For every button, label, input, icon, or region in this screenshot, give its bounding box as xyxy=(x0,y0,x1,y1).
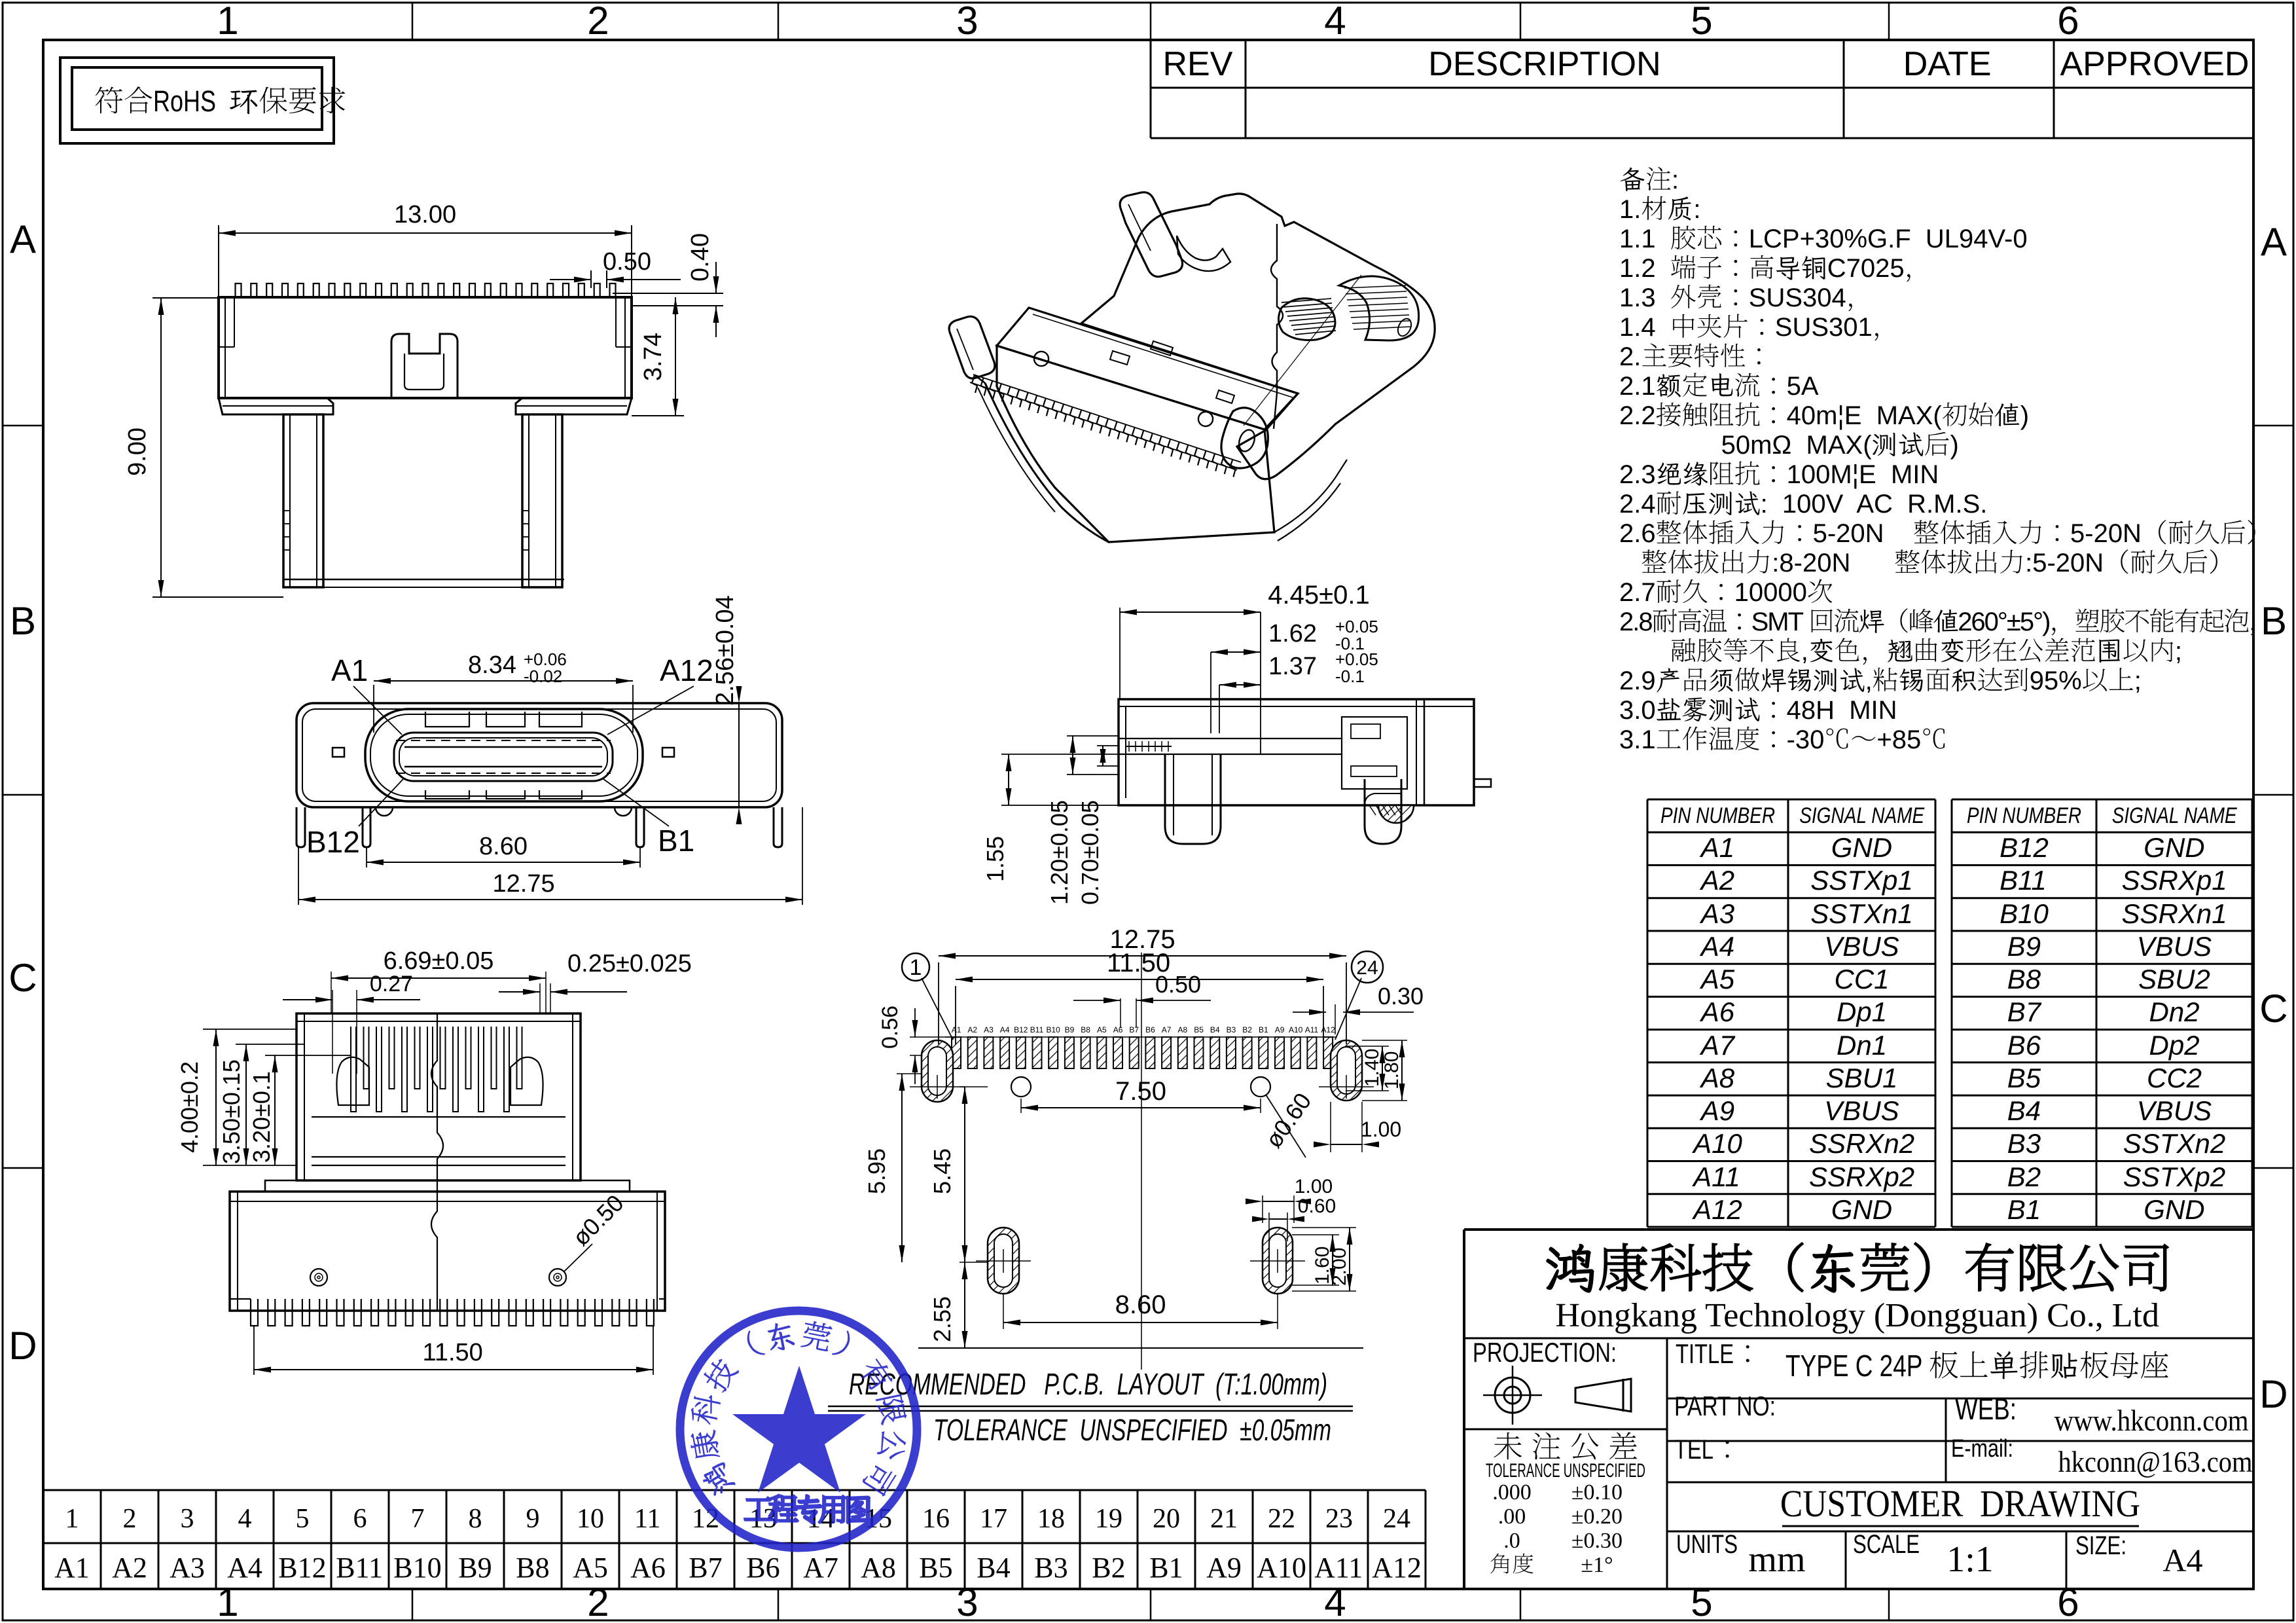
svg-text:100M¦E MIN: 100M¦E MIN xyxy=(1787,460,1939,489)
svg-text::8-20N: :8-20N xyxy=(1772,549,1894,577)
svg-text:TEL: TEL xyxy=(1674,1434,1713,1465)
svg-text:1.4: 1.4 xyxy=(1619,313,1670,342)
svg-text:B6: B6 xyxy=(2007,1030,2041,1061)
svg-text:: 100V AC R.M.S.: : 100V AC R.M.S. xyxy=(1761,490,1988,519)
svg-text:WEB:: WEB: xyxy=(1955,1392,2017,1426)
svg-text:APPROVED: APPROVED xyxy=(2060,45,2250,83)
svg-text:B11: B11 xyxy=(2000,865,2047,896)
svg-text:A11: A11 xyxy=(1691,1161,1740,1192)
svg-text:B: B xyxy=(2261,599,2287,643)
svg-text:PIN NUMBER: PIN NUMBER xyxy=(1967,803,2081,828)
svg-text:TYPE C 24P: TYPE C 24P xyxy=(1785,1349,1929,1383)
svg-text:2: 2 xyxy=(587,1580,609,1623)
svg-text:A7: A7 xyxy=(803,1552,838,1584)
svg-text:1:1: 1:1 xyxy=(1946,1539,1994,1580)
svg-text:2.56±0.04: 2.56±0.04 xyxy=(711,595,739,706)
svg-text::5-20N: :5-20N xyxy=(2025,549,2104,577)
svg-text:A9: A9 xyxy=(1275,1025,1285,1034)
svg-text:C: C xyxy=(9,956,37,1000)
svg-text:DATE: DATE xyxy=(1903,45,1992,83)
svg-text:4: 4 xyxy=(1324,1580,1346,1623)
svg-text:B2: B2 xyxy=(2007,1161,2041,1192)
svg-text:A7: A7 xyxy=(1162,1025,1172,1034)
svg-text:A12: A12 xyxy=(1372,1552,1422,1584)
svg-text:±0.10: ±0.10 xyxy=(1571,1480,1623,1504)
svg-text:0.40: 0.40 xyxy=(687,233,714,282)
svg-text:2.3: 2.3 xyxy=(1619,460,1656,489)
svg-text:UNITS: UNITS xyxy=(1676,1530,1738,1559)
svg-text:A5: A5 xyxy=(1699,964,1735,994)
svg-text:PART NO:: PART NO: xyxy=(1674,1391,1776,1421)
svg-text:.00: .00 xyxy=(1498,1504,1526,1529)
svg-text:3: 3 xyxy=(181,1504,194,1534)
svg-text:6: 6 xyxy=(2057,0,2079,43)
svg-text:E-mail:: E-mail: xyxy=(1951,1435,2013,1463)
svg-text:CUSTOMER DRAWING: CUSTOMER DRAWING xyxy=(1780,1482,2140,1525)
svg-text:2.7: 2.7 xyxy=(1619,578,1656,607)
svg-text:1.37: 1.37 xyxy=(1268,653,1317,680)
svg-text:3.74: 3.74 xyxy=(639,333,667,381)
svg-text:SIZE:: SIZE: xyxy=(2075,1531,2126,1560)
svg-text:B7: B7 xyxy=(689,1552,722,1584)
svg-text:A11: A11 xyxy=(1314,1552,1363,1584)
svg-text:SSRXn1: SSRXn1 xyxy=(2122,898,2227,929)
svg-text:B5: B5 xyxy=(2007,1063,2041,1093)
svg-text:VBUS: VBUS xyxy=(1824,931,1899,962)
svg-text:CC1: CC1 xyxy=(1835,964,1890,994)
svg-text:VBUS: VBUS xyxy=(1824,1095,1899,1126)
svg-text:B7: B7 xyxy=(1129,1025,1139,1034)
svg-text:Hongkang Technology (Dongguan): Hongkang Technology (Dongguan) Co., Ltd xyxy=(1555,1297,2159,1334)
svg-text:±0.30: ±0.30 xyxy=(1571,1529,1623,1553)
svg-text:8: 8 xyxy=(469,1504,482,1534)
svg-text:B12: B12 xyxy=(306,825,360,859)
svg-text:SBU2: SBU2 xyxy=(2138,964,2210,994)
svg-text:1.2: 1.2 xyxy=(1619,254,1670,283)
svg-text:1.00: 1.00 xyxy=(1295,1176,1333,1197)
svg-text:8.60: 8.60 xyxy=(1115,1290,1166,1319)
svg-text:A1: A1 xyxy=(952,1025,961,1034)
svg-text:SSRXp2: SSRXp2 xyxy=(1809,1161,1914,1192)
svg-text:.000: .000 xyxy=(1492,1480,1532,1504)
svg-text:SIGNAL NAME: SIGNAL NAME xyxy=(1799,803,1924,828)
svg-text:10: 10 xyxy=(577,1504,604,1534)
svg-text:0.50: 0.50 xyxy=(603,248,651,276)
svg-text:B12: B12 xyxy=(1014,1025,1028,1034)
svg-text:B12: B12 xyxy=(278,1552,326,1584)
svg-text:www.hkconn.com: www.hkconn.com xyxy=(2054,1404,2249,1437)
svg-text:hkconn@163.com: hkconn@163.com xyxy=(2058,1445,2253,1478)
svg-text:2.00: 2.00 xyxy=(1329,1248,1350,1286)
svg-text:A: A xyxy=(10,217,36,261)
svg-text:5-20N: 5-20N xyxy=(2070,519,2142,548)
svg-text:0.56: 0.56 xyxy=(878,1006,903,1049)
svg-text:B1: B1 xyxy=(2007,1194,2041,1225)
svg-text:A2: A2 xyxy=(967,1025,977,1034)
svg-text:B9: B9 xyxy=(458,1552,492,1584)
svg-text:A1: A1 xyxy=(331,653,368,687)
svg-text:3: 3 xyxy=(956,1580,978,1623)
svg-text:19: 19 xyxy=(1095,1504,1122,1534)
svg-text:A4: A4 xyxy=(227,1552,262,1584)
svg-text:8.60: 8.60 xyxy=(479,833,528,860)
svg-text:20: 20 xyxy=(1153,1504,1180,1534)
svg-text:±0.20: ±0.20 xyxy=(1571,1504,1623,1529)
svg-text:B5: B5 xyxy=(1194,1025,1204,1034)
svg-text:B8: B8 xyxy=(2007,964,2041,994)
svg-text:LCP+30%G.F UL94V-0: LCP+30%G.F UL94V-0 xyxy=(1749,225,2028,253)
svg-text:A9: A9 xyxy=(1699,1095,1734,1126)
svg-text:TOLERANCE UNSPECIFIED: TOLERANCE UNSPECIFIED xyxy=(1486,1460,1645,1482)
svg-text:0.30: 0.30 xyxy=(1378,983,1424,1010)
svg-text:22: 22 xyxy=(1268,1504,1295,1534)
svg-text:TITLE: TITLE xyxy=(1676,1338,1734,1369)
svg-text:Dp1: Dp1 xyxy=(1837,996,1887,1027)
svg-text:2.6: 2.6 xyxy=(1619,519,1656,548)
svg-text:RECOMMENDED P.C.B. LAYOUT: RECOMMENDED P.C.B. LAYOUT (T:1.00mm) xyxy=(849,1367,1327,1401)
svg-text:mm: mm xyxy=(1748,1539,1805,1580)
svg-text:Dp2: Dp2 xyxy=(2149,1030,2200,1061)
svg-text:2.55: 2.55 xyxy=(929,1296,956,1342)
svg-text:48H MIN: 48H MIN xyxy=(1787,696,1897,725)
svg-text:24: 24 xyxy=(1356,957,1378,979)
svg-text:21: 21 xyxy=(1210,1504,1238,1534)
svg-text:1.00: 1.00 xyxy=(1361,1118,1401,1141)
svg-text:D: D xyxy=(9,1324,37,1368)
svg-text:0.50: 0.50 xyxy=(1155,971,1201,998)
svg-text:A12: A12 xyxy=(1691,1194,1742,1225)
svg-text:A3: A3 xyxy=(170,1552,205,1584)
svg-text:A9: A9 xyxy=(1206,1552,1242,1584)
svg-text:1.40: 1.40 xyxy=(1361,1049,1383,1087)
svg-text:0.70±0.05: 0.70±0.05 xyxy=(1077,800,1103,905)
svg-text:TOLERANCE UNSPECIFIED ±0.05m: TOLERANCE UNSPECIFIED ±0.05mm xyxy=(933,1413,1331,1447)
svg-text:PIN NUMBER: PIN NUMBER xyxy=(1660,803,1775,828)
svg-text:A7: A7 xyxy=(1699,1030,1736,1061)
svg-text:1: 1 xyxy=(910,955,922,980)
svg-text:SBU1: SBU1 xyxy=(1826,1063,1898,1093)
svg-text:4.45±0.1: 4.45±0.1 xyxy=(1268,581,1369,610)
svg-text:1.1: 1.1 xyxy=(1619,225,1670,253)
svg-text:A11: A11 xyxy=(1305,1025,1319,1034)
svg-text:A4: A4 xyxy=(1000,1025,1010,1034)
svg-text:2.1: 2.1 xyxy=(1619,372,1656,401)
svg-text:3.0: 3.0 xyxy=(1619,696,1656,725)
svg-text:+85: +85 xyxy=(1876,725,1921,754)
svg-text:2.4: 2.4 xyxy=(1619,490,1656,519)
svg-text:B8: B8 xyxy=(516,1552,549,1584)
svg-text::: : xyxy=(1672,166,1679,194)
svg-text:6: 6 xyxy=(2057,1580,2079,1623)
svg-text:17: 17 xyxy=(980,1504,1007,1534)
svg-text:9.00: 9.00 xyxy=(124,428,151,476)
svg-text:B12: B12 xyxy=(2000,832,2049,863)
svg-text:B9: B9 xyxy=(1065,1025,1075,1034)
svg-text:A1: A1 xyxy=(1699,832,1734,863)
svg-text:B7: B7 xyxy=(2007,996,2042,1027)
svg-text:C7025: C7025 xyxy=(1827,254,1905,283)
svg-text:A5: A5 xyxy=(573,1552,608,1584)
svg-text:,: , xyxy=(1801,637,1808,666)
svg-text:8.34: 8.34 xyxy=(468,651,516,679)
svg-text:;: ; xyxy=(2175,637,2182,666)
svg-text:5: 5 xyxy=(1691,1580,1712,1623)
svg-text:1.3: 1.3 xyxy=(1619,283,1670,312)
svg-text:7.50: 7.50 xyxy=(1115,1077,1166,1106)
svg-text:1: 1 xyxy=(65,1504,79,1534)
svg-text:23: 23 xyxy=(1325,1504,1353,1534)
svg-text:.0: .0 xyxy=(1503,1529,1520,1553)
svg-text:B6: B6 xyxy=(746,1552,780,1584)
svg-text:B5: B5 xyxy=(919,1552,952,1584)
svg-text:A4: A4 xyxy=(1699,931,1734,962)
svg-text:9: 9 xyxy=(526,1504,540,1534)
svg-text:A3: A3 xyxy=(1699,898,1734,929)
svg-text:50mΩ MAX(: 50mΩ MAX( xyxy=(1619,431,1872,460)
svg-text:GND: GND xyxy=(1831,1194,1892,1225)
svg-text:-0.02: -0.02 xyxy=(524,666,562,686)
svg-text:A8: A8 xyxy=(1699,1063,1735,1093)
svg-text:B2: B2 xyxy=(1092,1552,1125,1584)
svg-text:1: 1 xyxy=(217,1580,238,1623)
svg-text:1.62: 1.62 xyxy=(1268,620,1317,647)
svg-text:B11: B11 xyxy=(336,1552,383,1584)
svg-text:RoHS: RoHS xyxy=(153,84,229,118)
svg-text:1.: 1. xyxy=(1619,195,1641,224)
svg-text:-30: -30 xyxy=(1787,725,1825,754)
svg-text:B10: B10 xyxy=(393,1552,441,1584)
svg-text:GND: GND xyxy=(2144,832,2204,863)
svg-text:VBUS: VBUS xyxy=(2137,1095,2212,1126)
svg-text:6: 6 xyxy=(353,1504,367,1534)
svg-text:B11: B11 xyxy=(1030,1025,1044,1034)
svg-text:0.60: 0.60 xyxy=(1298,1195,1336,1217)
svg-text:0.25±0.025: 0.25±0.025 xyxy=(567,950,692,977)
svg-text:B9: B9 xyxy=(2007,931,2041,962)
svg-text:B4: B4 xyxy=(2007,1095,2041,1126)
svg-text:B4: B4 xyxy=(977,1552,1010,1584)
svg-text:B8: B8 xyxy=(1081,1025,1090,1034)
svg-text:CC2: CC2 xyxy=(2147,1063,2202,1093)
svg-text:SSTXp2: SSTXp2 xyxy=(2123,1161,2225,1192)
svg-text:2.9: 2.9 xyxy=(1619,666,1656,695)
svg-text:B3: B3 xyxy=(1227,1025,1236,1034)
svg-text:SUS301: SUS301 xyxy=(1775,313,1873,342)
svg-text:D: D xyxy=(2259,1372,2287,1416)
svg-text:SCALE: SCALE xyxy=(1853,1530,1920,1559)
svg-text:B: B xyxy=(10,599,36,643)
svg-text:C: C xyxy=(2259,987,2287,1030)
svg-text:SSTXp1: SSTXp1 xyxy=(1810,865,1912,896)
svg-text:B10: B10 xyxy=(2000,898,2049,929)
svg-text:95%: 95% xyxy=(2030,666,2082,695)
svg-text:SIGNAL NAME: SIGNAL NAME xyxy=(2112,803,2237,828)
svg-text:A6: A6 xyxy=(630,1552,666,1584)
svg-text:B1: B1 xyxy=(1149,1552,1183,1584)
svg-text:3: 3 xyxy=(956,0,978,43)
svg-text:DESCRIPTION: DESCRIPTION xyxy=(1428,45,1660,83)
svg-text:1: 1 xyxy=(217,0,238,43)
svg-text:SSRXn2: SSRXn2 xyxy=(1809,1128,1914,1159)
svg-text:A8: A8 xyxy=(861,1552,896,1584)
svg-text:24: 24 xyxy=(1383,1504,1410,1534)
svg-text:): ) xyxy=(2020,401,2029,430)
svg-text:A2: A2 xyxy=(112,1552,147,1584)
svg-text:SMT: SMT xyxy=(1751,608,1808,636)
svg-text:GND: GND xyxy=(2144,1194,2204,1225)
svg-text:11: 11 xyxy=(634,1504,660,1534)
svg-text:1.55: 1.55 xyxy=(982,836,1009,882)
svg-text:PROJECTION:: PROJECTION: xyxy=(1473,1337,1617,1368)
svg-text:B3: B3 xyxy=(2007,1128,2041,1159)
svg-text:B2: B2 xyxy=(1242,1025,1252,1034)
svg-text:A6: A6 xyxy=(1113,1025,1123,1034)
svg-text:6.69±0.05: 6.69±0.05 xyxy=(384,947,494,975)
svg-text:10000: 10000 xyxy=(1734,578,1807,607)
svg-text:B10: B10 xyxy=(1047,1025,1061,1034)
svg-text:REV: REV xyxy=(1163,45,1233,83)
svg-text:;: ; xyxy=(2134,666,2142,695)
svg-text:SSRXp1: SSRXp1 xyxy=(2122,865,2227,896)
svg-text:B3: B3 xyxy=(1034,1552,1067,1584)
svg-text:SSTXn1: SSTXn1 xyxy=(1810,898,1912,929)
svg-text:2.: 2. xyxy=(1619,342,1641,371)
svg-text:A5: A5 xyxy=(1097,1025,1107,1034)
svg-text:13.00: 13.00 xyxy=(394,201,456,228)
svg-text:A1: A1 xyxy=(54,1552,90,1584)
svg-text:5A: 5A xyxy=(1787,372,1819,401)
svg-text::: : xyxy=(1693,195,1700,224)
svg-text:4: 4 xyxy=(238,1504,252,1534)
svg-text:12.75: 12.75 xyxy=(493,870,555,898)
svg-text:3.50±0.15: 3.50±0.15 xyxy=(218,1059,245,1164)
svg-text:5-20N: 5-20N xyxy=(1813,519,1913,548)
svg-text:5: 5 xyxy=(296,1504,310,1534)
svg-text:Dn2: Dn2 xyxy=(2149,996,2200,1027)
svg-text:5.95: 5.95 xyxy=(863,1148,890,1194)
svg-text:A2: A2 xyxy=(1699,865,1734,896)
svg-text:B1: B1 xyxy=(658,824,694,858)
svg-text:A: A xyxy=(2261,220,2287,264)
svg-text:): ) xyxy=(1950,431,1959,460)
svg-text:A10: A10 xyxy=(1289,1025,1303,1034)
svg-text:B4: B4 xyxy=(1210,1025,1220,1034)
svg-text:3.20±0.1: 3.20±0.1 xyxy=(248,1071,275,1163)
svg-text:260°±5°): 260°±5°) xyxy=(1958,608,2049,636)
svg-text:5: 5 xyxy=(1691,0,1712,43)
svg-text:0.27: 0.27 xyxy=(370,972,413,996)
svg-text:18: 18 xyxy=(1037,1504,1065,1534)
svg-text:Dn1: Dn1 xyxy=(1837,1030,1887,1061)
svg-text:-0.1: -0.1 xyxy=(1335,666,1365,686)
svg-text:VBUS: VBUS xyxy=(2137,931,2212,962)
svg-text:A3: A3 xyxy=(984,1025,994,1034)
svg-text:2.2: 2.2 xyxy=(1619,401,1656,430)
svg-text:SUS304: SUS304 xyxy=(1749,283,1846,312)
svg-text:3.1: 3.1 xyxy=(1619,725,1656,754)
svg-text:7: 7 xyxy=(411,1504,425,1534)
svg-text:B1: B1 xyxy=(1259,1025,1268,1034)
svg-text:11.50: 11.50 xyxy=(423,1339,483,1366)
svg-text:16: 16 xyxy=(922,1504,950,1534)
svg-text:40m¦E MAX(: 40m¦E MAX( xyxy=(1787,401,1943,430)
svg-text:2: 2 xyxy=(123,1504,137,1534)
svg-text:A10: A10 xyxy=(1691,1128,1742,1159)
svg-text:2: 2 xyxy=(587,0,609,43)
svg-text:A12: A12 xyxy=(660,653,713,687)
svg-text:SSTXn2: SSTXn2 xyxy=(2123,1128,2225,1159)
svg-text:4: 4 xyxy=(1324,0,1346,43)
svg-text:B6: B6 xyxy=(1145,1025,1155,1034)
svg-text:GND: GND xyxy=(1831,832,1892,863)
svg-text:A4: A4 xyxy=(2162,1542,2202,1578)
svg-text:A8: A8 xyxy=(1178,1025,1188,1034)
svg-text:5.45: 5.45 xyxy=(929,1148,956,1194)
svg-text:2.8: 2.8 xyxy=(1619,608,1652,636)
svg-text:4.00±0.2: 4.00±0.2 xyxy=(176,1061,203,1153)
svg-text:,: , xyxy=(1865,666,1873,695)
svg-text:A6: A6 xyxy=(1699,996,1735,1027)
svg-text:1.20±0.05: 1.20±0.05 xyxy=(1046,800,1073,905)
svg-text:A10: A10 xyxy=(1257,1552,1306,1584)
svg-text:±1°: ±1° xyxy=(1581,1553,1613,1577)
svg-text:1.80: 1.80 xyxy=(1381,1051,1403,1089)
